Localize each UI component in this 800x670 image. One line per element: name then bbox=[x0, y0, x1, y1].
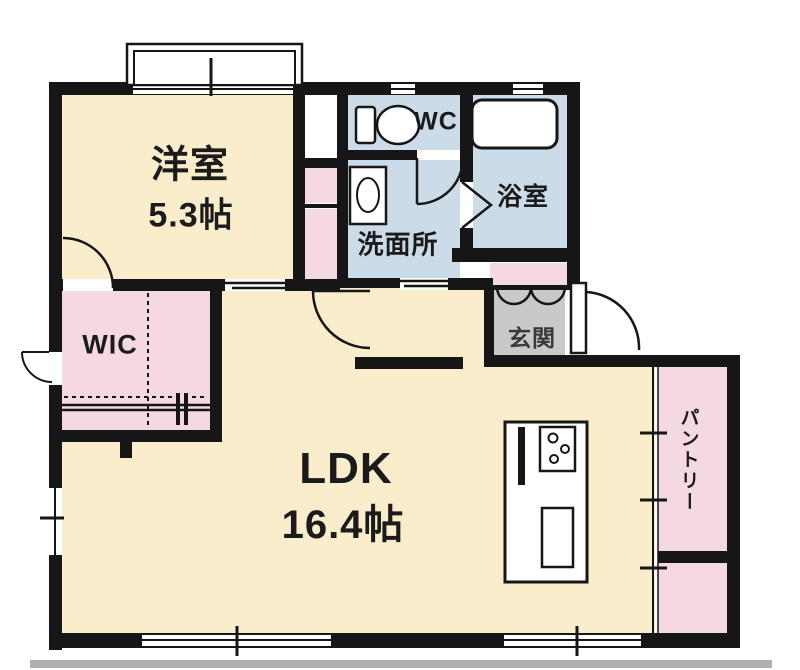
western-room-label: 洋室 bbox=[151, 134, 229, 189]
bathtub-icon bbox=[472, 100, 557, 148]
door-swing-arc bbox=[586, 292, 639, 350]
wc-label: WC bbox=[414, 108, 458, 137]
double-door-arcs bbox=[497, 287, 531, 304]
double-door-arcs bbox=[531, 287, 565, 304]
bathroom-label: 浴室 bbox=[497, 177, 549, 213]
toilet-icon bbox=[356, 107, 375, 143]
entrance-label: 玄関 bbox=[508, 319, 556, 353]
ldk-label: LDK bbox=[299, 444, 392, 494]
bottom-divider-bar bbox=[30, 660, 772, 668]
door-swing-arc bbox=[63, 238, 113, 288]
door-swing-arc bbox=[313, 291, 370, 348]
western-room-area: 5.3帖 bbox=[148, 188, 233, 237]
toilet-icon bbox=[377, 106, 419, 144]
folding-door-icon bbox=[462, 182, 491, 228]
stove-burner bbox=[549, 434, 558, 443]
kitchen-sink-icon bbox=[542, 508, 573, 567]
door-swing-arc bbox=[417, 158, 463, 204]
door-swing-arc bbox=[22, 352, 52, 382]
pantry-label: パントリー bbox=[675, 408, 702, 513]
window-bay-inner bbox=[134, 51, 295, 85]
stove-burner bbox=[561, 445, 569, 453]
wic-label: WIC bbox=[82, 330, 137, 361]
floor-plan: 洋室 5.3帖 WC 洗面所 浴室 玄関 WIC LDK 16.4帖 パントリー bbox=[0, 0, 800, 670]
kitchen-counter-icon bbox=[518, 427, 525, 485]
washroom-label: 洗面所 bbox=[357, 225, 438, 262]
sink-icon bbox=[357, 178, 379, 212]
stove-burner bbox=[550, 455, 558, 463]
entrance-door-leaf bbox=[571, 283, 586, 353]
ldk-area: 16.4帖 bbox=[282, 492, 405, 550]
